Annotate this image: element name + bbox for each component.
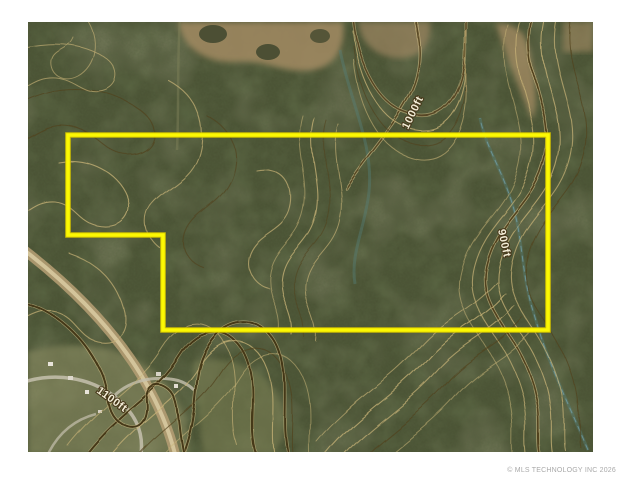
listing-photo: 1000ft 900ft 1100ft © MLS TECHNOLOGY INC… — [0, 0, 621, 480]
copyright-watermark: © MLS TECHNOLOGY INC 2026 — [507, 467, 616, 475]
house — [85, 390, 89, 394]
map-canvas: 1000ft 900ft 1100ft — [28, 22, 593, 452]
house — [68, 376, 73, 380]
house — [156, 372, 161, 376]
house — [48, 362, 53, 366]
tree-clump — [199, 25, 227, 43]
tree-clump — [256, 44, 280, 60]
aerial-topo-map: 1000ft 900ft 1100ft — [28, 22, 593, 452]
tree-clump — [310, 29, 330, 43]
house — [174, 384, 178, 388]
